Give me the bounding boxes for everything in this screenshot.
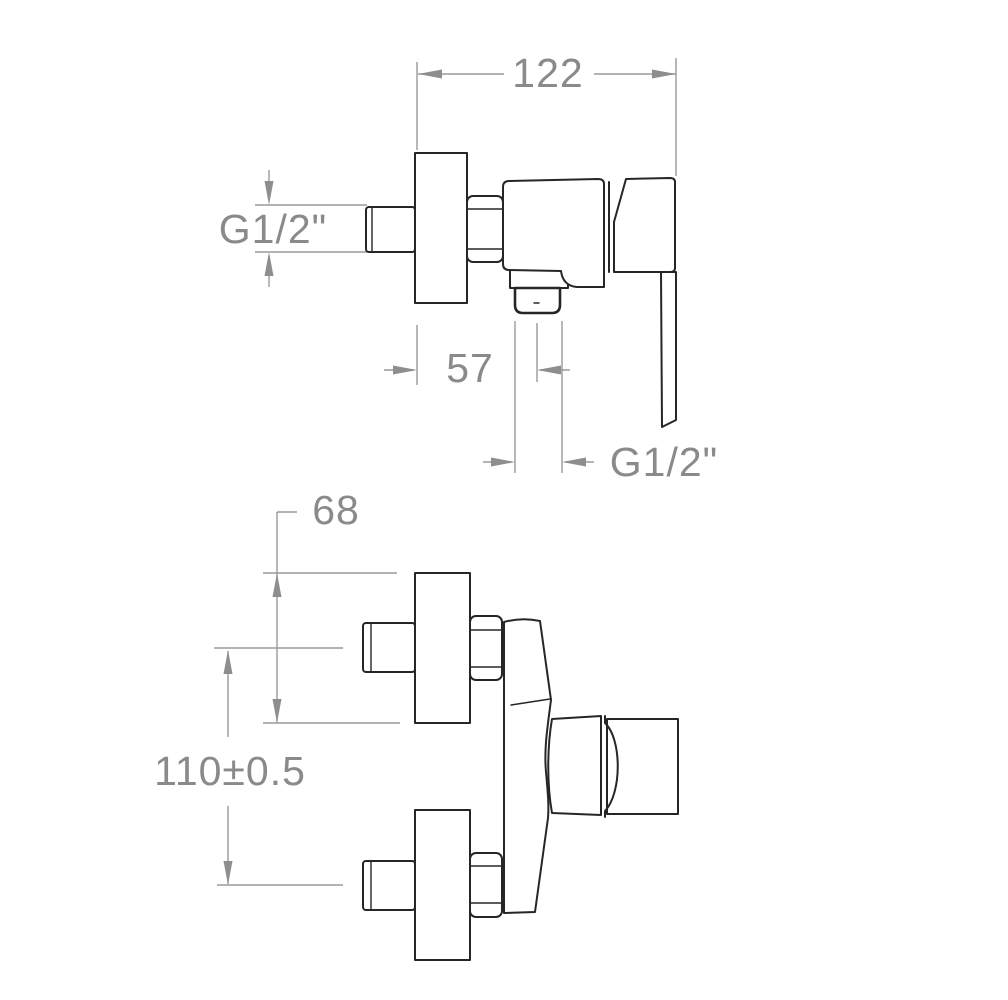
arrowhead-up-icon (265, 252, 274, 276)
nut-outline (470, 616, 502, 680)
front-view: 68 110±0.5 (154, 487, 678, 960)
dim-outlet-thread: G1/2" (483, 321, 718, 485)
nut-outline (470, 853, 502, 917)
arrowhead-down-icon (273, 699, 282, 723)
cartridge-housing-front (548, 716, 601, 815)
arrowhead-left-icon (418, 70, 442, 79)
bottom-mounting-nut-front (470, 853, 502, 917)
nut-outline (467, 196, 503, 262)
side-view: 122 G1/2" (219, 50, 718, 485)
arrowhead-left-icon (562, 458, 586, 467)
inlet-stub-side (366, 207, 415, 252)
outlet-thread-stub (515, 288, 560, 313)
bottom-inlet-stub-front (363, 861, 415, 910)
dim-outlet-offset-label: 57 (446, 345, 494, 391)
top-inlet-stub-front (363, 623, 415, 672)
dim-inlet-spacing: 110±0.5 (154, 648, 343, 885)
arrowhead-up-icon (224, 650, 233, 674)
wall-flange-side (415, 153, 467, 303)
arrowhead-right-icon (491, 458, 515, 467)
arrowhead-left-icon (537, 366, 561, 375)
dim-inlet-spacing-label: 110±0.5 (154, 748, 306, 794)
arrowhead-down-icon (265, 181, 274, 205)
arrowhead-down-icon (224, 861, 233, 885)
dim-overall-depth-label: 122 (512, 50, 583, 96)
mixer-body-front (504, 619, 551, 913)
arrowhead-right-icon (393, 366, 417, 375)
arrowhead-up-icon (273, 573, 282, 597)
dim-inlet-thread: G1/2" (219, 170, 367, 287)
threaded-stub (366, 207, 415, 252)
body-outline (504, 619, 551, 913)
dim-inlet-thread-label: G1/2" (219, 206, 327, 252)
bottom-wall-flange-front (415, 810, 470, 960)
dim-escutcheon-label: 68 (312, 487, 360, 533)
dim-escutcheon: 68 (263, 487, 400, 723)
arrowhead-right-icon (652, 70, 676, 79)
handle-cap-side (614, 178, 675, 272)
dim-outlet-offset: 57 (384, 323, 570, 391)
top-wall-flange-front (415, 573, 470, 723)
mounting-nut-side (467, 196, 503, 262)
top-mounting-nut-front (470, 616, 502, 680)
dim-outlet-thread-label: G1/2" (610, 439, 718, 485)
handle-lever-side (661, 272, 676, 427)
technical-drawing-canvas: 122 G1/2" (0, 0, 1008, 1000)
drawing-svg: 122 G1/2" (0, 0, 1008, 1000)
mixer-body-side (503, 179, 604, 287)
